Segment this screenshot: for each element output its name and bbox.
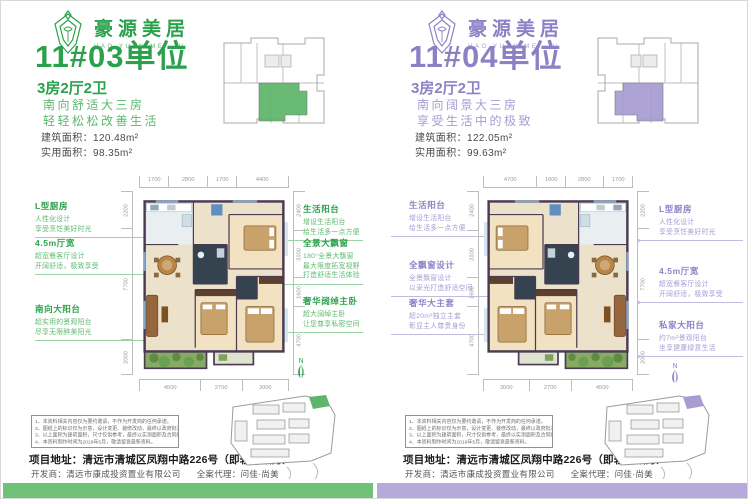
dimension-row-top: 1700280017004400	[139, 176, 289, 188]
footer-color-bar	[377, 483, 747, 498]
dimension-value: 1700	[216, 176, 229, 182]
annotation-title: 私家大阳台	[659, 319, 743, 331]
built-area: 建筑面积：122.05m²	[415, 131, 512, 146]
dimension-segment: 4500	[139, 379, 200, 391]
dimension-segment: 4700	[483, 176, 536, 188]
usable-area: 实用面积：98.35m²	[41, 146, 138, 161]
annotation-leader-line	[637, 240, 743, 241]
annotation-line: 超大阔绰主卧	[303, 310, 363, 320]
dimension-segment: 3000	[242, 379, 289, 391]
annotation-line: 增设生活阳台	[303, 218, 363, 228]
dimension-segment: 3000	[483, 379, 529, 391]
annotation-line: 人性化设计	[659, 218, 743, 228]
dimension-value: 1700	[612, 176, 625, 182]
unit-areas: 建筑面积：120.48m² 实用面积：98.35m²	[41, 131, 138, 161]
built-area: 建筑面积：120.48m²	[41, 131, 138, 146]
dimension-segment: 1700	[139, 176, 168, 188]
dimension-segment: 1700	[603, 176, 633, 188]
annotation-leader-line	[637, 302, 743, 303]
feature-annotation: 4.5m厅宽超宽餐客厅设计开阔舒适，极致享受	[637, 265, 743, 303]
unit-title: 11#03单位	[35, 41, 189, 73]
annotation-leader-line	[637, 356, 743, 357]
annotation-line: 让您尊享私密空间	[303, 320, 363, 330]
floor-plan-rooms	[145, 201, 288, 368]
annotation-title: 奢华阔绰主卧	[303, 295, 363, 307]
annotation-line: 超宽餐客厅设计	[659, 280, 743, 290]
floor-plan	[139, 191, 289, 375]
disclaimer-line: 2、图纸上的标识仅为示意，设计变更、装修改动，最终以政府批准图纸为准。	[35, 425, 175, 432]
disclaimer-line: 1、本资料相关内容仅为要约邀请，不作为开发商的任何承诺。	[35, 418, 175, 425]
annotation-line: 最大限度拓宽视野	[303, 262, 363, 272]
floor-plan-rooms	[484, 201, 627, 368]
disclaimer-text: 1、本资料相关内容仅为要约邀请，不作为开发商的任何承诺。 2、图纸上的标识仅为示…	[409, 418, 549, 445]
unit-layout: 3房2厅2卫	[411, 77, 481, 98]
dimension-value: 4400	[256, 176, 269, 182]
annotation-line: 享受烹饪美好时光	[659, 228, 743, 238]
developer: 开发商：清远市康成投资置业有限公司	[31, 468, 181, 480]
feature-annotation: L型厨房人性化设计享受烹饪美好时光	[637, 203, 743, 241]
site-plan	[223, 391, 341, 479]
dimension-value: 2700	[215, 384, 228, 390]
dimension-value: 3000	[259, 384, 272, 390]
site-plan	[597, 391, 715, 479]
dimension-value: 2800	[578, 176, 591, 182]
annotation-line: 180°全景大飘窗	[303, 252, 363, 262]
brochure-page: 豪源美居 HAO YUAN MEI JU 11#03单位 3房2厅2卫 南向舒适…	[0, 0, 748, 499]
brand-name: 豪源美居	[94, 14, 190, 41]
dimension-segment: 1600	[536, 176, 564, 188]
disclaimer-text: 1、本资料相关内容仅为要约邀请，不作为开发商的任何承诺。 2、图纸上的标识仅为示…	[35, 418, 175, 445]
annotation-line: 开阔舒适，极致享受	[659, 290, 743, 300]
dimension-segment: 4500	[571, 379, 633, 391]
dimension-value: 1600	[545, 176, 558, 182]
north-compass-icon: N	[667, 361, 683, 385]
unit-tagline: 南向阔景大三房 享受生活中的极致	[417, 97, 533, 129]
dimension-value: 4500	[163, 384, 176, 390]
annotation-column-right: L型厨房人性化设计享受烹饪美好时光4.5m厅宽超宽餐客厅设计开阔舒适，极致享受私…	[637, 195, 743, 379]
feature-annotation: 私家大阳台约7m²景观阳台坐享健康绿意生活	[637, 319, 743, 357]
disclaimer-line: 4、本资料制作时间为2019年5月，敬请留意最新资料。	[35, 438, 175, 445]
north-label: N	[298, 358, 303, 365]
annotation-title: L型厨房	[659, 203, 743, 215]
floor-plan	[483, 191, 633, 375]
dimension-value: 4500	[596, 384, 609, 390]
unit-areas: 建筑面积：122.05m² 实用面积：99.63m²	[415, 131, 512, 161]
disclaimer-box: 1、本资料相关内容仅为要约邀请，不作为开发商的任何承诺。 2、图纸上的标识仅为示…	[405, 415, 553, 448]
annotation-line: 坐享健康绿意生活	[659, 344, 743, 354]
annotation-line: 约7m²景观阳台	[659, 334, 743, 344]
usable-area: 实用面积：99.63m²	[415, 146, 512, 161]
disclaimer-line: 1、本资料相关内容仅为要约邀请，不作为开发商的任何承诺。	[409, 418, 549, 425]
dimension-row-top: 4700160028001700	[483, 176, 633, 188]
tagline-line1: 南向舒适大三房	[43, 97, 159, 113]
dimension-segment: 1700	[207, 176, 236, 188]
tagline-line1: 南向阔景大三房	[417, 97, 533, 113]
annotation-line: 打造舒适生活体验	[303, 271, 363, 281]
annotation-title: 全景大飘窗	[303, 237, 363, 249]
dimension-row-bottom: 300027004500	[483, 379, 633, 391]
north-compass-icon: N	[293, 356, 309, 380]
brand-name: 豪源美居	[468, 14, 564, 41]
north-label: N	[672, 363, 677, 370]
dimension-segment: 2800	[168, 176, 206, 188]
dimension-segment: 4400	[236, 176, 289, 188]
disclaimer-line: 3、以上面积为建筑面积，尺寸仅供参考，最终以实测面积及合同约定为准。	[409, 432, 549, 439]
dimension-value: 2700	[544, 384, 557, 390]
disclaimer-line: 3、以上面积为建筑面积，尺寸仅供参考，最终以实测面积及合同约定为准。	[35, 432, 175, 439]
dimension-value: 2800	[182, 176, 195, 182]
disclaimer-box: 1、本资料相关内容仅为要约邀请，不作为开发商的任何承诺。 2、图纸上的标识仅为示…	[31, 415, 179, 448]
dimension-row-bottom: 450027003000	[139, 379, 289, 391]
dimension-value: 4700	[504, 176, 517, 182]
tagline-line2: 轻轻松松改善生活	[43, 113, 159, 129]
unit-tagline: 南向舒适大三房 轻轻松松改善生活	[43, 97, 159, 129]
developer: 开发商：清远市康成投资置业有限公司	[405, 468, 555, 480]
tagline-line2: 享受生活中的极致	[417, 113, 533, 129]
dimension-value: 1700	[148, 176, 161, 182]
annotation-title: 生活阳台	[303, 203, 363, 215]
unit-panel-04: 豪源美居 HAO YUAN MEI JU 11#04单位 3房2厅2卫 南向阔景…	[375, 1, 748, 499]
dimension-segment: 2700	[200, 379, 243, 391]
dimension-value: 3000	[500, 384, 513, 390]
dimension-segment: 2700	[529, 379, 572, 391]
annotation-line: 给生活多一点方便	[303, 228, 363, 238]
annotation-title: 4.5m厅宽	[659, 265, 743, 277]
unit-layout: 3房2厅2卫	[37, 77, 107, 98]
disclaimer-line: 4、本资料制作时间为2019年5月，敬请留意最新资料。	[409, 438, 549, 445]
dimension-segment: 2800	[565, 176, 603, 188]
unit-panel-03: 豪源美居 HAO YUAN MEI JU 11#03单位 3房2厅2卫 南向舒适…	[1, 1, 375, 499]
key-plan	[221, 35, 327, 127]
key-plan	[595, 35, 701, 127]
disclaimer-line: 2、图纸上的标识仅为示意，设计变更、装修改动，最终以政府批准图纸为准。	[409, 425, 549, 432]
unit-title: 11#04单位	[409, 41, 563, 73]
footer-color-bar	[3, 483, 373, 498]
